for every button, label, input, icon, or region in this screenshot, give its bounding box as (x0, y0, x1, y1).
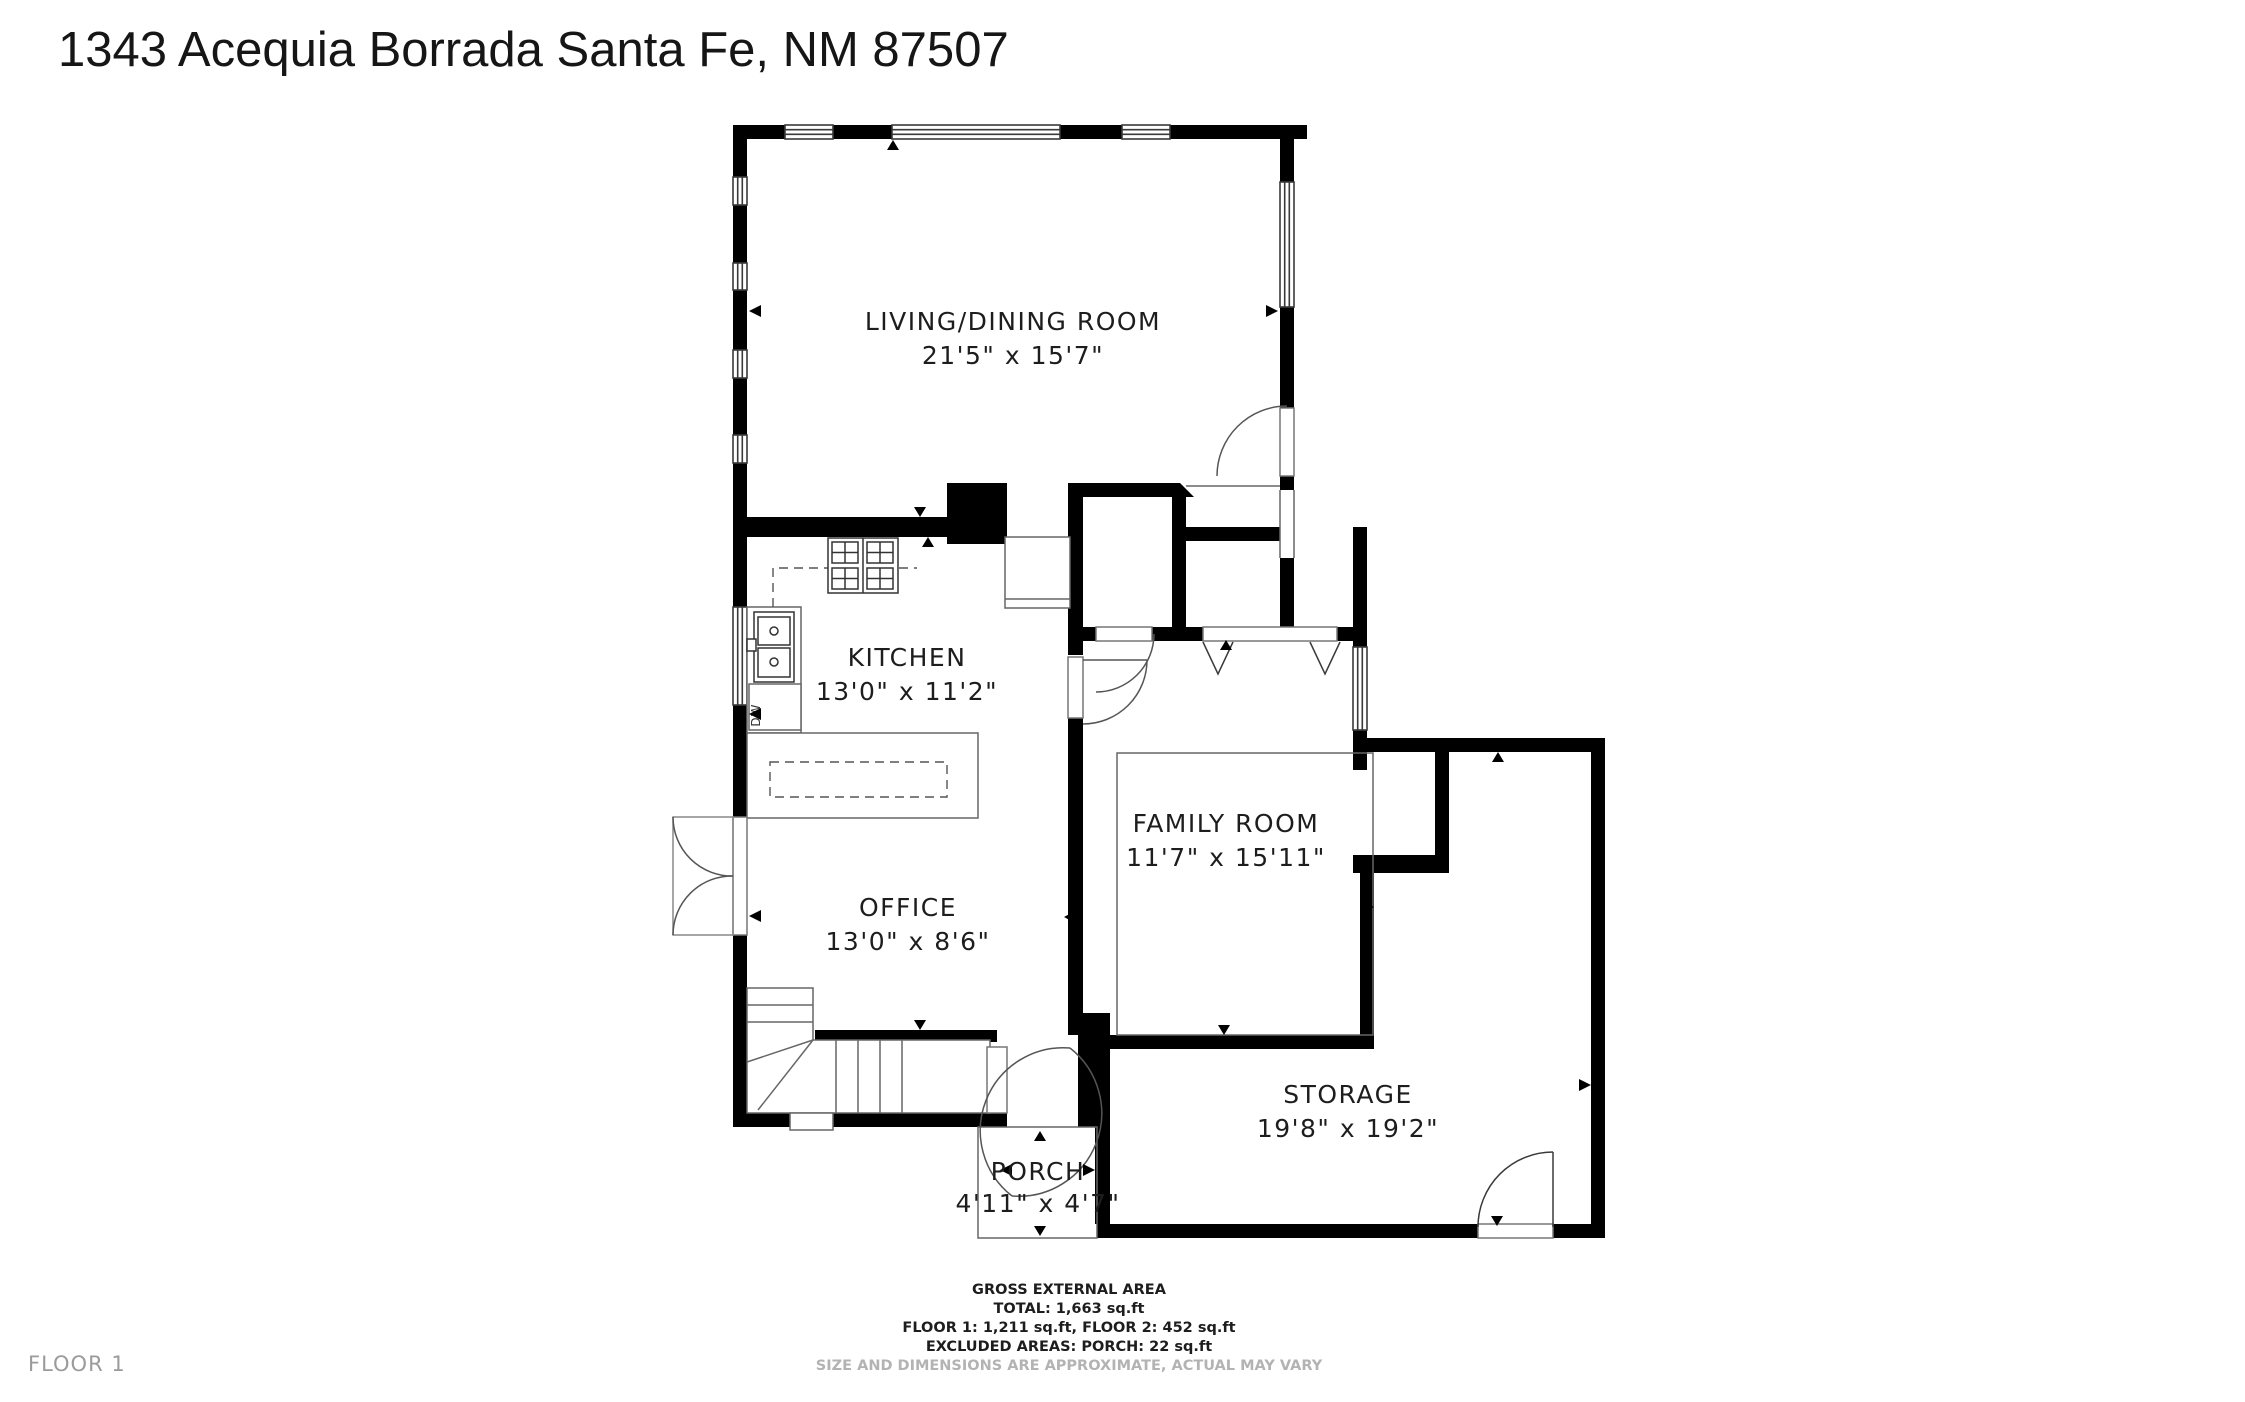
burner (867, 568, 893, 589)
dishwasher: DW (749, 684, 801, 730)
room-name: LIVING/DINING ROOM (865, 307, 1161, 336)
wall (1280, 125, 1294, 182)
window (1353, 647, 1367, 730)
wall (1360, 873, 1374, 1049)
wall (1068, 627, 1096, 641)
stove (828, 538, 898, 593)
disclaimer: SIZE AND DIMENSIONS ARE APPROXIMATE, ACT… (816, 1357, 1322, 1376)
room-name: FAMILY ROOM (1133, 809, 1320, 838)
wall (1280, 476, 1294, 490)
marker-icon (914, 1020, 926, 1030)
marker-icon (749, 910, 761, 922)
area-summary: GROSS EXTERNAL AREA TOTAL: 1,663 sq.ft F… (816, 1281, 1322, 1376)
marker-icon (1218, 1025, 1230, 1035)
floor-label: FLOOR 1 (28, 1352, 126, 1376)
wall (1353, 855, 1449, 873)
window (892, 125, 1060, 139)
floorplan: DW (0, 0, 2245, 1402)
wall (1280, 307, 1294, 408)
wall (1078, 1035, 1095, 1127)
room-dims: 4'11" x 4'7" (956, 1189, 1121, 1218)
marker-icon (914, 507, 926, 517)
wall (733, 378, 747, 435)
room-name: STORAGE (1283, 1080, 1413, 1109)
area-excluded: EXCLUDED AREAS: PORCH: 22 sq.ft (816, 1338, 1322, 1357)
room-dims: 11'7" x 15'11" (1126, 843, 1326, 872)
family-room-floor (1117, 753, 1373, 1035)
wall (1172, 497, 1186, 641)
wall (833, 125, 892, 139)
window (1122, 125, 1170, 139)
marker-icon (922, 537, 934, 547)
wall (733, 935, 747, 1127)
storage-door (1478, 1152, 1553, 1238)
marker-icon (1034, 1131, 1046, 1141)
burner (832, 542, 858, 563)
window (733, 177, 747, 205)
island-counter (747, 733, 978, 818)
room-dims: 13'0" x 11'2" (816, 677, 998, 706)
wall (1186, 527, 1280, 541)
marker-icon (1492, 752, 1504, 762)
wall (733, 463, 747, 607)
marker-icon (1034, 1226, 1046, 1236)
window (1280, 182, 1294, 307)
marker-icon (1266, 305, 1278, 317)
wall (733, 705, 747, 817)
marker-icon (749, 305, 761, 317)
sink-tap (747, 639, 756, 651)
front-step (790, 1113, 833, 1130)
wall (1353, 527, 1367, 647)
room-dims: 13'0" x 8'6" (826, 927, 991, 956)
wall-corner (1180, 483, 1194, 497)
wall (1152, 627, 1203, 641)
wall (1591, 738, 1605, 1238)
burner (832, 568, 858, 589)
window (733, 350, 747, 378)
counter-peninsula (1005, 537, 1070, 608)
room-dims: 21'5" x 15'7" (922, 341, 1104, 370)
window (733, 435, 747, 463)
window (785, 125, 833, 139)
wall (1068, 718, 1083, 1035)
room-name: OFFICE (859, 893, 957, 922)
wall (733, 290, 747, 350)
kitchen-window (733, 607, 747, 705)
wall (1100, 1035, 1374, 1049)
wall (1068, 1013, 1110, 1035)
wall (733, 205, 747, 263)
staircase (747, 988, 990, 1130)
burner (867, 542, 893, 563)
bifold-door-icon (1310, 642, 1340, 674)
area-total: TOTAL: 1,663 sq.ft (816, 1300, 1322, 1319)
chimney-block (947, 483, 1007, 544)
wall (747, 517, 950, 537)
wall (1435, 752, 1449, 855)
wall (1353, 738, 1605, 752)
area-floors: FLOOR 1: 1,211 sq.ft, FLOOR 2: 452 sq.ft (816, 1319, 1322, 1338)
room-name: PORCH (991, 1157, 1086, 1186)
window (733, 263, 747, 290)
french-doors (673, 817, 747, 935)
bifold-doors (1203, 627, 1340, 674)
living-room-door (1217, 406, 1294, 476)
room-dims: 19'8" x 19'2" (1257, 1114, 1439, 1143)
area-summary-title: GROSS EXTERNAL AREA (816, 1281, 1322, 1300)
marker-icon (1579, 1079, 1591, 1091)
wall (1097, 1224, 1478, 1238)
marker-icon (887, 140, 899, 150)
room-name: KITCHEN (848, 643, 967, 672)
wall (733, 125, 747, 177)
wall (733, 1113, 1007, 1127)
wall (1068, 483, 1180, 497)
wall (1553, 1224, 1605, 1238)
wall (1060, 125, 1122, 139)
sink (747, 612, 794, 682)
